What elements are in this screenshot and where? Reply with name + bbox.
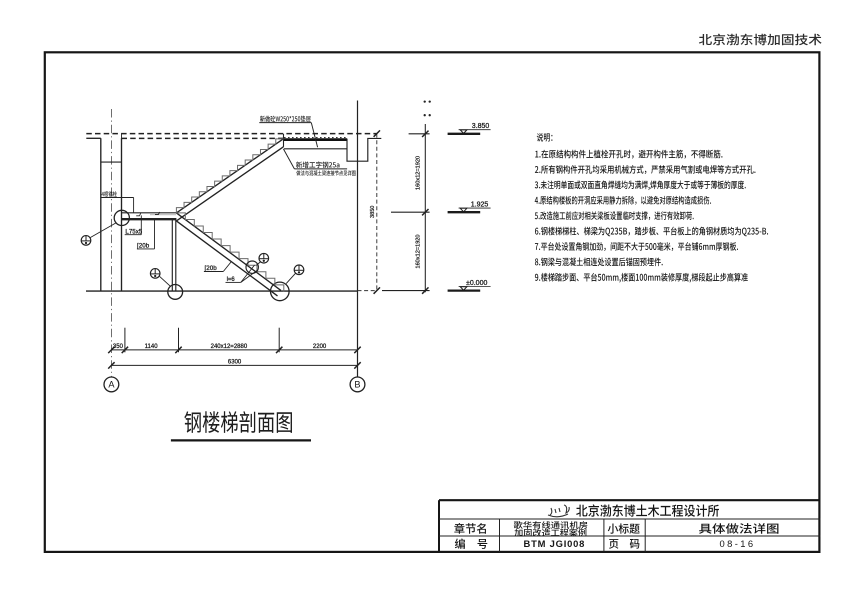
svg-text:2200: 2200 — [313, 344, 327, 350]
svg-text:160x12=1920: 160x12=1920 — [415, 234, 421, 268]
svg-text:6300: 6300 — [228, 360, 242, 366]
svg-text:1.925: 1.925 — [471, 202, 489, 209]
svg-text:3.850: 3.850 — [472, 123, 490, 130]
svg-text:BTM JGI008: BTM JGI008 — [524, 538, 586, 549]
svg-text:350: 350 — [113, 344, 124, 350]
svg-text:±0.000: ±0.000 — [466, 280, 487, 287]
svg-text:[20b: [20b — [137, 242, 150, 249]
svg-text:[20b: [20b — [205, 265, 218, 272]
svg-text:B: B — [354, 380, 360, 390]
svg-text:A: A — [108, 380, 115, 390]
svg-text:240x12=2880: 240x12=2880 — [211, 344, 248, 350]
svg-text:160x12=1920: 160x12=1920 — [415, 156, 421, 190]
svg-text:3850: 3850 — [370, 206, 376, 218]
svg-text:08-16: 08-16 — [720, 538, 756, 549]
svg-text:1140: 1140 — [145, 344, 159, 350]
